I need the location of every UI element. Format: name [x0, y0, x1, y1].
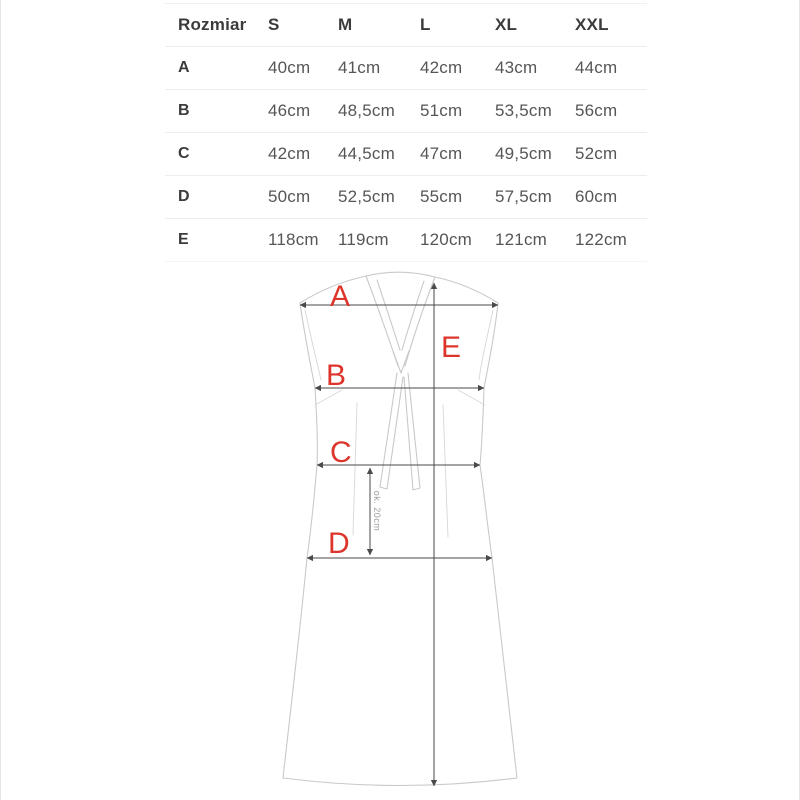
armhole-facing-right [479, 310, 493, 380]
dress-outline [283, 272, 517, 785]
dart-right [443, 405, 448, 537]
tie-ribbon-right [404, 373, 420, 490]
underarm-seam-right [458, 390, 485, 405]
tie-ribbon-left [380, 373, 403, 489]
dress-silhouette [283, 276, 517, 786]
dress-measurement-diagram: A B C D E ok. 20cm [0, 0, 800, 800]
measure-note-20cm: ok. 20cm [372, 491, 382, 532]
measure-label-d: D [328, 527, 350, 560]
dart-left [353, 403, 357, 535]
back-neckline [366, 272, 435, 277]
measure-label-a: A [330, 280, 350, 313]
neck-band-outer-right [405, 277, 435, 366]
measure-label-b: B [326, 359, 346, 392]
underarm-seam-left [315, 390, 342, 405]
measure-label-e: E [441, 331, 461, 364]
seam-details [305, 310, 493, 537]
page: Rozmiar S M L XL XXL A 40cm 41cm 42cm 43… [0, 0, 800, 800]
measure-label-c: C [330, 436, 352, 469]
